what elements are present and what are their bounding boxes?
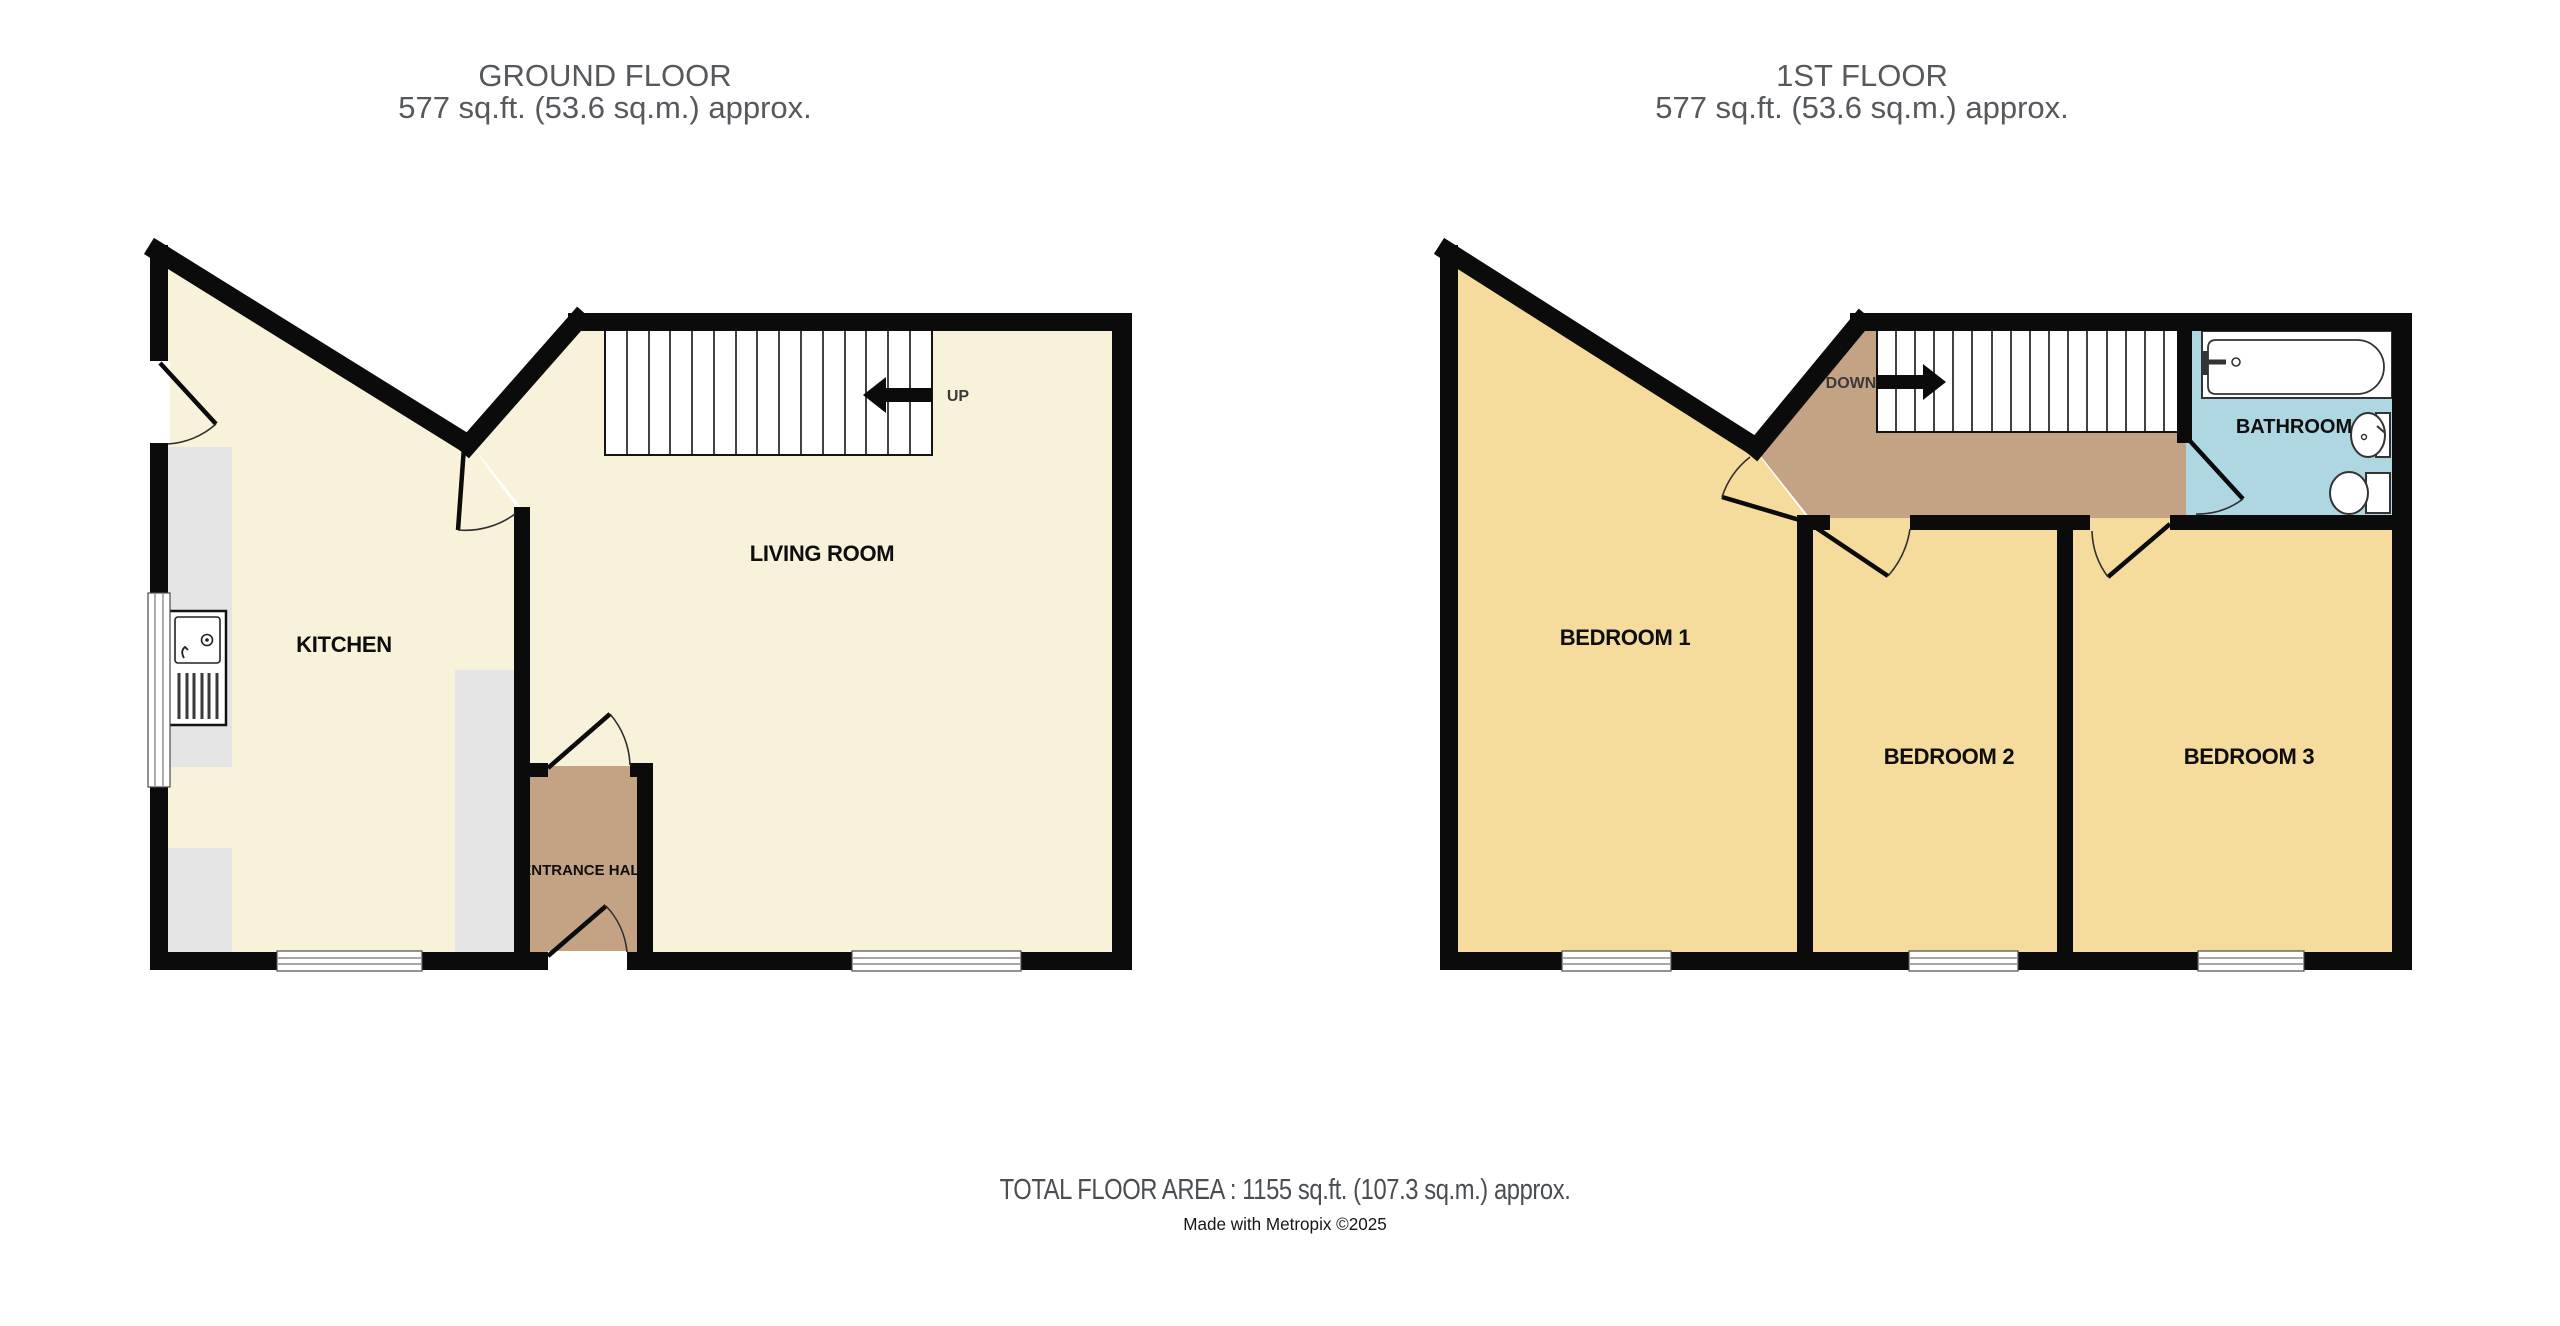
wall-kitchen-living-divider bbox=[514, 507, 530, 952]
living-room-label: LIVING ROOM bbox=[750, 541, 895, 566]
kitchen-label: KITCHEN bbox=[296, 632, 392, 657]
wall-top bbox=[1850, 313, 2412, 331]
bedroom1-label: BEDROOM 1 bbox=[1560, 625, 1691, 650]
wall-right bbox=[2392, 313, 2412, 970]
total-floor-area: TOTAL FLOOR AREA : 1155 sq.ft. (107.3 sq… bbox=[1000, 1173, 1571, 1206]
wall-landing-right bbox=[2170, 515, 2412, 530]
kitchen-sink bbox=[169, 611, 226, 725]
wall-hall-right bbox=[637, 763, 653, 952]
window-bedroom2-bottom bbox=[1909, 951, 2018, 971]
stairs-up bbox=[605, 330, 932, 455]
sink-drain-dot bbox=[205, 638, 209, 642]
bedroom2-label: BEDROOM 2 bbox=[1884, 744, 2015, 769]
toilet-bowl bbox=[2330, 472, 2368, 514]
ground-floor-title: GROUND FLOOR bbox=[478, 58, 731, 93]
ground-floor-plan: ENTRANCE HALL bbox=[148, 245, 1132, 971]
room-bedroom-3 bbox=[2066, 518, 2400, 960]
bathtub-drain bbox=[2232, 358, 2240, 366]
wall-hall-top-left bbox=[530, 763, 548, 777]
wall-bedroom1-2-divider bbox=[1797, 515, 1813, 960]
sink-bowl bbox=[2351, 413, 2385, 457]
stairs-down bbox=[1877, 330, 2183, 432]
kitchen-counter-left-lower bbox=[168, 848, 232, 952]
stairs-up-label: UP bbox=[947, 388, 970, 405]
window-bedroom3-bottom bbox=[2198, 951, 2304, 971]
stairs-down-label: DOWN bbox=[1826, 375, 1877, 392]
bathtub-tap bbox=[2202, 351, 2208, 375]
window-bedroom1-bottom bbox=[1562, 951, 1671, 971]
window-kitchen-left bbox=[148, 593, 170, 787]
ground-floor-area: 577 sq.ft. (53.6 sq.m.) approx. bbox=[398, 90, 812, 125]
entrance-hall-label: ENTRANCE HALL bbox=[521, 862, 649, 879]
toilet-cistern bbox=[2366, 473, 2390, 513]
first-floor-area: 577 sq.ft. (53.6 sq.m.) approx. bbox=[1655, 90, 2069, 125]
window-living-bottom bbox=[852, 951, 1021, 971]
room-bedroom-2 bbox=[1806, 518, 2066, 960]
wall-bedroom2-3-divider bbox=[2057, 518, 2073, 960]
first-floor-plan: BEDROOM 1 BEDROOM 2 BEDROOM 3 BATHROOM D… bbox=[1440, 245, 2412, 971]
toilet bbox=[2330, 472, 2390, 514]
metropix-credit: Made with Metropix ©2025 bbox=[1183, 1214, 1387, 1235]
window-kitchen-bottom bbox=[277, 951, 422, 971]
front-door-opening bbox=[548, 951, 627, 971]
first-floor-title: 1ST FLOOR bbox=[1776, 58, 1948, 93]
wall-right bbox=[1112, 313, 1132, 970]
bathtub bbox=[2202, 331, 2392, 398]
bedroom3-label: BEDROOM 3 bbox=[2184, 744, 2315, 769]
bathroom-sink bbox=[2351, 413, 2390, 457]
wall-top bbox=[568, 313, 1132, 331]
floorplan-svg: GROUND FLOOR 577 sq.ft. (53.6 sq.m.) app… bbox=[0, 0, 2560, 1326]
kitchen-counter-right bbox=[455, 670, 514, 952]
bathtub-basin bbox=[2208, 340, 2384, 394]
wall-left bbox=[1440, 245, 1458, 970]
bathroom-label: BATHROOM bbox=[2236, 416, 2352, 438]
floorplan-page: GROUND FLOOR 577 sq.ft. (53.6 sq.m.) app… bbox=[0, 0, 2560, 1326]
wall-stairs-bathroom bbox=[2177, 313, 2192, 443]
